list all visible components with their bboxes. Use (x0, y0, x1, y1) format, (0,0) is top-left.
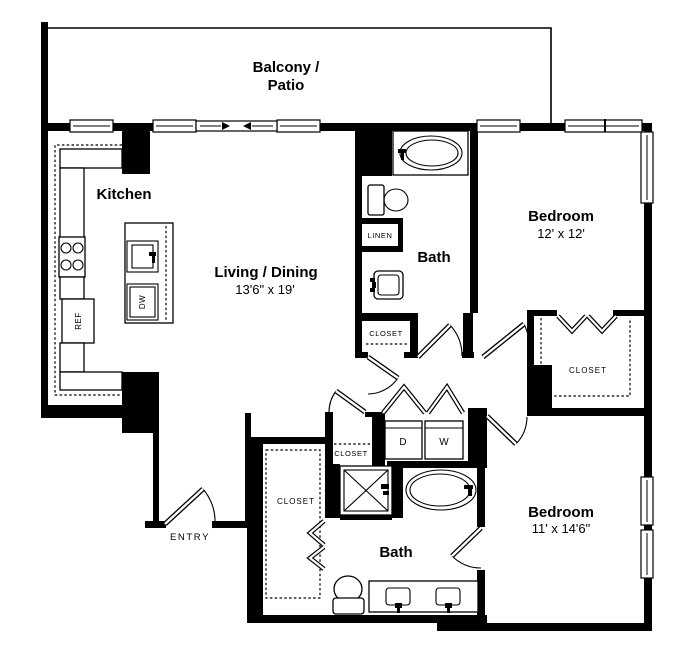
wall (404, 352, 418, 358)
balcony: Balcony / Patio (48, 28, 551, 123)
wall (365, 412, 385, 417)
kitchen: REF DW Kitchen (55, 145, 173, 395)
vanity-counter (369, 581, 478, 612)
living-dining-label: Living / Dining (214, 264, 317, 281)
floorplan-canvas: Balcony / Patio (0, 0, 697, 658)
door-leaf (452, 528, 481, 556)
refrigerator-label: REF (74, 312, 83, 330)
walkin-closet-label: CLOSET (277, 497, 315, 506)
entry: ENTRY (165, 489, 215, 543)
wall (463, 313, 473, 352)
sink-faucet-icon (370, 288, 375, 292)
shower-valve-icon (381, 484, 389, 489)
wall (470, 129, 478, 313)
sink-faucet-icon (395, 603, 402, 608)
entry-label: ENTRY (170, 532, 210, 543)
kitchen-counter (60, 277, 84, 299)
wall (325, 412, 333, 470)
balcony-sliding-door (196, 121, 277, 131)
bathtub-faucet-icon (401, 152, 404, 160)
door-swing-arc (329, 391, 336, 412)
bedroom-upper-closet-label: CLOSET (569, 366, 607, 375)
entry-door-arc (203, 489, 215, 524)
bedroom-lower-label: Bedroom (528, 504, 594, 521)
toilet-bowl (384, 189, 408, 211)
door-swing-arc (368, 378, 398, 394)
wall (247, 615, 437, 623)
wall (41, 405, 123, 418)
closet-bifold-door (310, 521, 324, 545)
island-faucet-icon (152, 256, 155, 263)
wall (527, 310, 534, 416)
wall (325, 464, 340, 518)
shower-valve-icon (383, 491, 389, 495)
wall (468, 408, 487, 468)
sink-faucet-icon (370, 278, 375, 282)
door-swing-arc (452, 556, 481, 568)
kitchen-label: Kitchen (96, 186, 151, 203)
wall (41, 22, 48, 418)
wall (153, 433, 159, 523)
laundry-bifold-door (383, 387, 425, 413)
sink-faucet-icon (445, 603, 452, 608)
wall (247, 437, 263, 623)
closet-bifold-door (310, 547, 324, 569)
living-dining: Living / Dining 13'6" x 19' (214, 264, 317, 297)
wall (355, 252, 362, 313)
hall-closet: CLOSET (329, 391, 371, 458)
wall (145, 521, 166, 528)
door-leaf (487, 416, 516, 444)
bath-upper-label: Bath (417, 249, 450, 266)
bath-closet-label: CLOSET (369, 329, 403, 338)
wall (247, 437, 328, 444)
bathtub-faucet-icon (468, 489, 472, 496)
wall (613, 310, 652, 316)
bathtub-basin (410, 474, 470, 506)
entry-door-leaf (165, 489, 203, 524)
island-faucet-icon (149, 252, 156, 256)
laundry-closet: D W (383, 387, 463, 459)
bedroom-closet-dashed (541, 318, 630, 396)
wall (355, 352, 368, 358)
dryer-label: D (399, 437, 406, 448)
living-dining-dimensions: 13'6" x 19' (235, 282, 294, 297)
wall (390, 461, 477, 468)
balcony-label-line2: Patio (268, 77, 305, 94)
bedroom-lower: Bedroom 11' x 14'6" (487, 416, 594, 536)
walkin-closet: CLOSET (266, 450, 324, 598)
bathtub-faucet-icon (464, 485, 473, 489)
closet-bifold-door (558, 316, 586, 331)
walkin-closet-dashed (266, 450, 320, 598)
sink-faucet-icon (447, 608, 450, 613)
bedroom-upper-label: Bedroom (528, 208, 594, 225)
wall (122, 129, 150, 174)
wall (462, 352, 474, 358)
sink-faucet-icon (372, 282, 376, 288)
bedroom-lower-dimensions: 11' x 14'6" (532, 521, 591, 536)
dishwasher-label: DW (138, 295, 147, 309)
walls (41, 22, 652, 631)
wall (355, 313, 418, 321)
door-leaf (368, 357, 398, 378)
wall (355, 129, 392, 176)
kitchen-counter (60, 343, 84, 372)
kitchen-counter (60, 372, 122, 390)
linen-label: LINEN (367, 231, 392, 240)
bath-lower: Bath (333, 466, 481, 614)
wall (478, 623, 652, 631)
wall (212, 521, 251, 528)
washer-label: W (439, 437, 449, 448)
wall (372, 417, 385, 468)
toilet-tank (333, 598, 364, 614)
wall (355, 176, 362, 218)
bathtub-rim (406, 470, 476, 510)
sink-faucet-icon (397, 608, 400, 613)
bedroom-upper-dimensions: 12' x 12' (537, 226, 585, 241)
wall (527, 408, 652, 416)
closet-bifold-door (588, 316, 616, 331)
door-leaf (336, 391, 365, 412)
door-leaf (483, 324, 524, 357)
laundry-bifold-door (383, 387, 425, 413)
bath-lower-label: Bath (379, 544, 412, 561)
kitchen-counter (60, 168, 84, 238)
balcony-label-line1: Balcony / (253, 59, 321, 76)
wall (122, 372, 159, 433)
toilet-tank (368, 185, 384, 215)
door-leaf (418, 325, 450, 357)
stove (59, 237, 85, 277)
wall (410, 321, 418, 352)
wall (477, 468, 485, 527)
door-swing-arc (516, 417, 527, 444)
door-swing-arc (450, 325, 462, 356)
hall-closet-label: CLOSET (334, 449, 368, 458)
kitchen-counter (60, 149, 122, 168)
